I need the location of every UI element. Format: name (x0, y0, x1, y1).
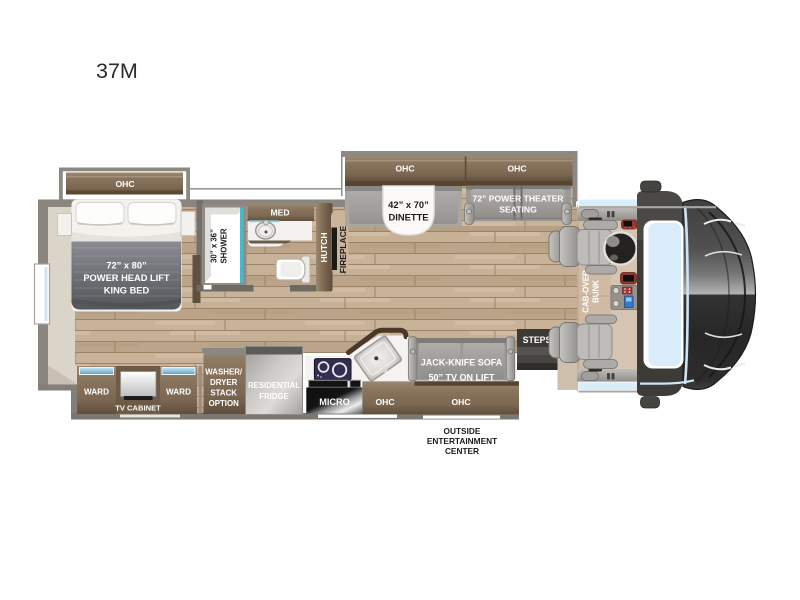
svg-text:OHC: OHC (451, 397, 470, 407)
svg-text:KING BED: KING BED (104, 286, 150, 296)
svg-text:TV CABINET: TV CABINET (115, 404, 161, 413)
svg-text:50” TV ON LIFT: 50” TV ON LIFT (428, 373, 495, 383)
svg-text:CENTER: CENTER (445, 446, 479, 456)
svg-text:30” x 36”: 30” x 36” (210, 229, 219, 263)
svg-text:OPTION: OPTION (209, 399, 240, 408)
svg-text:72” x 80”: 72” x 80” (106, 261, 146, 271)
svg-text:OHC: OHC (115, 179, 134, 189)
svg-text:MICRO: MICRO (319, 397, 350, 407)
svg-text:ENTERTAINMENT: ENTERTAINMENT (427, 436, 497, 446)
svg-text:SEATING: SEATING (499, 205, 537, 215)
svg-text:DINETTE: DINETTE (388, 212, 428, 223)
svg-text:WARD: WARD (166, 388, 191, 397)
svg-text:DRYER: DRYER (210, 378, 238, 387)
svg-text:SHOWER: SHOWER (220, 228, 229, 263)
svg-text:POWER HEAD LIFT: POWER HEAD LIFT (83, 273, 170, 283)
svg-text:WASHER/: WASHER/ (205, 368, 243, 377)
svg-text:CAB-OVER: CAB-OVER (582, 270, 591, 313)
svg-text:OHC: OHC (507, 164, 526, 174)
svg-text:OHC: OHC (375, 397, 394, 407)
svg-text:JACK-KNIFE SOFA: JACK-KNIFE SOFA (421, 358, 503, 368)
svg-text:HUTCH: HUTCH (319, 232, 329, 262)
svg-text:STEPS: STEPS (523, 335, 552, 345)
svg-text:OUTSIDE: OUTSIDE (444, 426, 481, 436)
svg-text:MED: MED (270, 208, 289, 218)
svg-text:72” POWER THEATER: 72” POWER THEATER (472, 194, 564, 204)
svg-text:42” x 70”: 42” x 70” (388, 199, 429, 210)
svg-text:FRIDGE: FRIDGE (259, 392, 288, 401)
svg-text:WARD: WARD (84, 388, 109, 397)
svg-text:BUNK: BUNK (592, 280, 601, 303)
svg-text:OHC: OHC (395, 164, 414, 174)
svg-text:37M: 37M (96, 59, 138, 83)
svg-text:FIREPLACE: FIREPLACE (338, 225, 348, 273)
svg-text:STACK: STACK (210, 389, 237, 398)
svg-text:RESIDENTIAL: RESIDENTIAL (248, 381, 300, 390)
